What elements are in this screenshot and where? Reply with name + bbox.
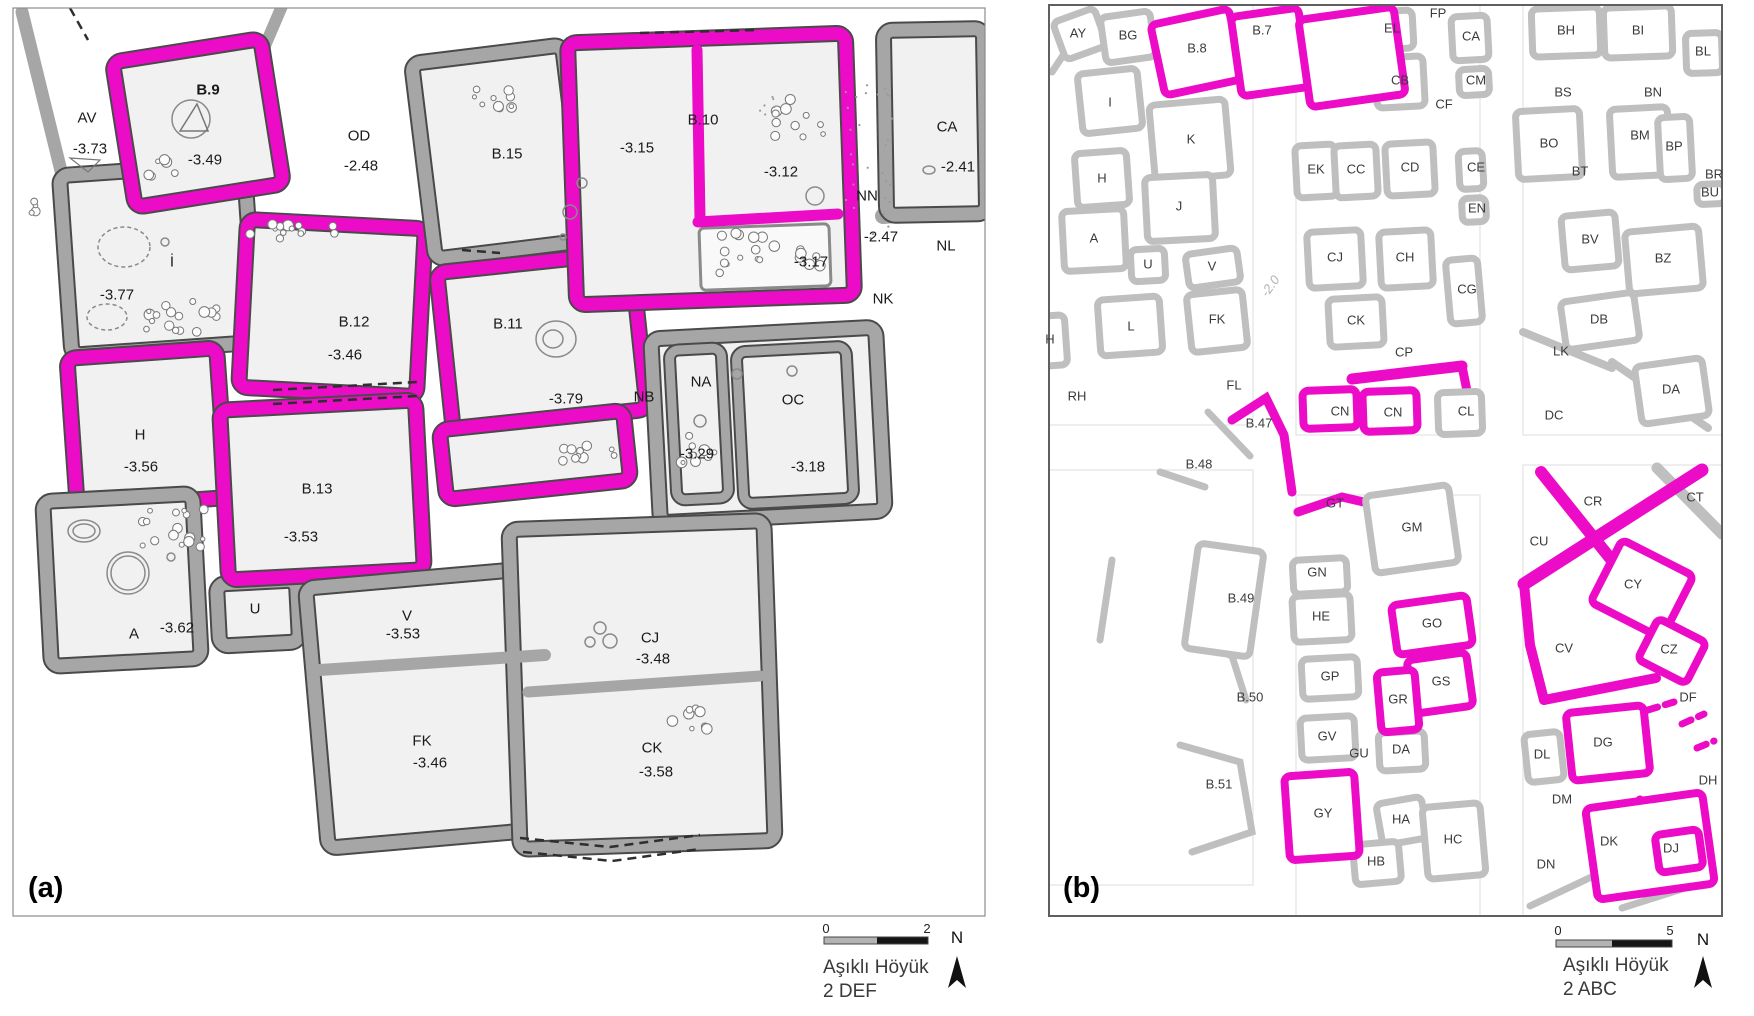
dot	[764, 113, 766, 115]
dashed-wall	[70, 8, 88, 40]
stone	[769, 241, 780, 252]
map-label-BV: BV	[1581, 232, 1598, 247]
scalebar-a-tick-start: 0	[822, 921, 829, 936]
map-label-FL: FL	[1226, 378, 1241, 393]
map-label-DG: DG	[1593, 735, 1613, 750]
map-label-CN: CN	[1384, 405, 1403, 420]
map-label-DF: DF	[1679, 690, 1696, 705]
stone	[818, 122, 824, 128]
map-label-A: A	[129, 626, 139, 643]
street-wall-highlighted	[1524, 584, 1544, 700]
map-label--3.53: -3.53	[386, 626, 420, 643]
map-label-CD: CD	[1401, 160, 1420, 175]
stone	[791, 121, 799, 129]
stone	[702, 724, 713, 735]
north-arrow-a	[948, 956, 966, 988]
map-label-CK: CK	[1347, 313, 1365, 328]
map-label-BT: BT	[1572, 164, 1589, 179]
stone	[720, 259, 728, 267]
dot	[884, 197, 886, 199]
stone	[781, 104, 792, 115]
map-label-CJ: CJ	[641, 630, 659, 647]
stone	[716, 269, 724, 277]
dot	[845, 199, 847, 201]
stone	[821, 132, 826, 137]
stone	[144, 170, 154, 180]
stone	[686, 432, 693, 439]
stone	[611, 453, 617, 459]
map-label-CY: CY	[1624, 577, 1642, 592]
stone	[149, 318, 154, 323]
dot	[865, 92, 867, 94]
map-label-OC: OC	[782, 392, 805, 409]
stone	[771, 131, 780, 140]
map-label--3.62: -3.62	[160, 620, 194, 637]
map-label-B.10: B.10	[688, 112, 719, 129]
map-label-GO: GO	[1422, 616, 1442, 631]
room-outline	[736, 346, 854, 504]
dot	[852, 163, 854, 165]
panel-b-geometry	[1024, 5, 1725, 916]
map-label-V: V	[1208, 259, 1217, 274]
stone	[609, 447, 614, 452]
map-label--2.47: -2.47	[864, 229, 898, 246]
stone	[803, 112, 809, 118]
stone	[147, 309, 151, 313]
dot	[845, 91, 847, 93]
dashed-wall-highlighted	[1697, 741, 1714, 748]
map-label-BH: BH	[1557, 23, 1575, 38]
map-label-BG: BG	[1119, 28, 1138, 43]
map-label-RH: RH	[1068, 389, 1087, 404]
stone	[31, 198, 38, 205]
panel-a-tag: (a)	[28, 872, 63, 905]
stone	[166, 308, 175, 317]
map-label--2.41: -2.41	[941, 159, 975, 176]
map-label-FK: FK	[412, 733, 431, 750]
scalebar-b-tick-end: 5	[1666, 923, 1673, 938]
site-plan-svg	[0, 0, 1754, 1016]
map-label-J: J	[1176, 199, 1183, 214]
map-label-BI: BI	[1632, 23, 1644, 38]
stone	[686, 706, 693, 713]
stone	[717, 231, 726, 240]
dot	[891, 118, 893, 120]
stone	[493, 101, 503, 111]
dot	[773, 106, 775, 108]
dot	[888, 201, 890, 203]
dot	[886, 93, 888, 95]
scalebar-b-caption-line1: Aşıklı Höyük	[1563, 955, 1669, 977]
stone	[751, 245, 760, 254]
map-label-CM: CM	[1466, 73, 1486, 88]
stone	[559, 456, 568, 465]
map-label--3.77: -3.77	[100, 287, 134, 304]
map-label-LK: LK	[1553, 344, 1569, 359]
dot	[772, 98, 774, 100]
map-label-CN: CN	[1331, 404, 1350, 419]
street-wall-highlighted	[1352, 366, 1462, 379]
street-wall	[1100, 560, 1112, 640]
map-label-BS: BS	[1554, 85, 1571, 100]
map-label-HB: HB	[1367, 854, 1385, 869]
dot	[850, 153, 852, 155]
stone	[159, 155, 169, 165]
map-label-CR: CR	[1584, 494, 1603, 509]
map-label-FP: FP	[1430, 6, 1447, 21]
street-wall	[1160, 472, 1205, 487]
wall-divider	[697, 50, 700, 218]
stone	[748, 232, 758, 242]
map-label-GP: GP	[1321, 669, 1340, 684]
dot	[852, 183, 854, 185]
map-label-EN: EN	[1468, 201, 1486, 216]
map-label-CK: CK	[642, 740, 663, 757]
dot	[853, 207, 855, 209]
stone	[199, 505, 208, 514]
stone	[772, 118, 780, 126]
stone	[720, 247, 729, 256]
dot	[877, 93, 879, 95]
map-label-NN: NN	[856, 188, 878, 205]
map-label-GV: GV	[1318, 729, 1337, 744]
map-label-GU: GU	[1349, 746, 1369, 761]
map-label-EK: EK	[1307, 162, 1324, 177]
map-label--3.79: -3.79	[549, 391, 583, 408]
map-label-K: K	[1187, 132, 1196, 147]
map-label-NA: NA	[691, 374, 712, 391]
stone	[800, 134, 806, 140]
map-label-DA: DA	[1662, 382, 1680, 397]
map-label--3.15: -3.15	[620, 140, 654, 157]
stone	[143, 518, 150, 525]
room-outline	[883, 29, 986, 216]
stone	[690, 726, 694, 730]
stone	[298, 231, 304, 237]
scalebar-a-caption-line1: Aşıklı Höyük	[823, 957, 929, 979]
map-label-B.48: B.48	[1186, 457, 1213, 472]
map-label-B.8: B.8	[1187, 41, 1207, 56]
room-outline	[239, 219, 426, 396]
stone	[199, 307, 210, 318]
stone	[268, 220, 277, 229]
stone	[165, 321, 174, 330]
map-label-BR: BR	[1705, 167, 1723, 182]
map-label-EL: EL	[1384, 21, 1400, 36]
map-label-HC: HC	[1444, 832, 1463, 847]
stone	[201, 537, 205, 541]
map-label-CA: CA	[937, 119, 958, 136]
stone	[695, 707, 705, 717]
north-label-a: N	[951, 928, 963, 948]
room-outline	[67, 348, 227, 508]
map-label-DB: DB	[1590, 312, 1608, 327]
stone-cluster	[29, 198, 40, 216]
map-label--3.73: -3.73	[73, 141, 107, 158]
stone	[153, 312, 160, 319]
stone	[785, 94, 795, 104]
dot	[847, 107, 849, 109]
stone	[295, 222, 302, 229]
north-label-b: N	[1697, 930, 1709, 950]
stone	[472, 95, 476, 99]
map-label-CC: CC	[1347, 162, 1366, 177]
street-wall	[1180, 745, 1252, 852]
stone	[480, 102, 485, 107]
dot	[858, 124, 860, 126]
map-label--3.46: -3.46	[413, 755, 447, 772]
north-arrow-b	[1694, 956, 1712, 988]
dot	[771, 96, 773, 98]
map-label-CG: CG	[1457, 282, 1477, 297]
dot	[867, 167, 869, 169]
room-highlighted	[1655, 829, 1704, 873]
map-label-DH: DH	[1699, 773, 1718, 788]
map-label-CV: CV	[1555, 641, 1573, 656]
map-label-NL: NL	[936, 238, 955, 255]
map-label-CJ: CJ	[1327, 250, 1343, 265]
map-label-B.7: B.7	[1252, 23, 1272, 38]
dot	[849, 129, 851, 131]
map-label--3.53: -3.53	[284, 529, 318, 546]
dot	[884, 88, 886, 90]
map-label-B.50: B.50	[1237, 690, 1264, 705]
stone	[731, 228, 741, 238]
map-label-CE: CE	[1467, 160, 1485, 175]
map-label-DK: DK	[1600, 834, 1618, 849]
map-label-U: U	[1143, 257, 1152, 272]
dot	[885, 180, 887, 182]
map-label-L: L	[1127, 319, 1134, 334]
stone	[757, 257, 763, 263]
map-label--3.58: -3.58	[639, 764, 673, 781]
map-label-BU: BU	[1701, 185, 1719, 200]
stone	[196, 543, 204, 551]
stone	[504, 86, 513, 95]
stone	[173, 509, 180, 516]
map-label-CA: CA	[1462, 29, 1480, 44]
map-label--3.56: -3.56	[124, 459, 158, 476]
stone	[329, 222, 337, 230]
panel-a-geometry	[22, 6, 987, 861]
dashed-wall-highlighted	[1682, 714, 1704, 724]
map-label-AY: AY	[1070, 26, 1086, 41]
dot	[763, 104, 765, 106]
map-label--3.12: -3.12	[764, 164, 798, 181]
dot	[888, 94, 890, 96]
stone	[148, 508, 153, 513]
room-outline	[43, 494, 201, 667]
map-label-BP: BP	[1665, 139, 1682, 154]
map-label-CF: CF	[1435, 97, 1452, 112]
map-label-OD: OD	[348, 128, 371, 145]
map-label-B.11: B.11	[493, 316, 523, 333]
map-label-BZ: BZ	[1655, 251, 1672, 266]
map-label-V: V	[402, 608, 412, 625]
map-label-B.47: B.47	[1246, 416, 1273, 431]
dashed-wall-highlighted	[1648, 702, 1674, 710]
scalebar-a-caption-line2: 2 DEF	[823, 981, 877, 1003]
stone	[140, 543, 145, 548]
stone	[175, 312, 183, 320]
map-label-FK: FK	[1209, 312, 1226, 327]
dot	[759, 110, 761, 112]
stone	[772, 110, 779, 117]
stone	[276, 235, 283, 242]
map-label-BM: BM	[1630, 128, 1650, 143]
map-label-BO: BO	[1540, 136, 1559, 151]
map-label-A: A	[1090, 231, 1099, 246]
dot	[889, 184, 891, 186]
map-label-GT: GT	[1326, 496, 1344, 511]
street-wall-highlighted	[1544, 678, 1656, 700]
map-label-B.15: B.15	[492, 146, 523, 163]
stone	[184, 537, 194, 547]
map-label--3.48: -3.48	[636, 651, 670, 668]
stone	[169, 530, 179, 540]
map-label-B.9: B.9	[196, 82, 219, 99]
stone	[182, 508, 187, 513]
stone	[491, 95, 496, 100]
map-label-H: H	[135, 427, 146, 444]
stone	[567, 445, 576, 454]
map-label-GM: GM	[1402, 520, 1423, 535]
map-label--3.17: -3.17	[794, 254, 828, 271]
map-label-GS: GS	[1432, 674, 1451, 689]
map-label-DC: DC	[1545, 408, 1564, 423]
stone	[171, 170, 178, 177]
stone	[572, 454, 580, 462]
scalebar-b-tick-start: 0	[1554, 923, 1561, 938]
stone	[151, 537, 159, 545]
map-label--3.29: -3.29	[680, 446, 714, 463]
stone	[331, 230, 339, 238]
dot	[887, 226, 889, 228]
map-label-H: H	[1097, 171, 1106, 186]
panel-b-tag: (b)	[1063, 872, 1100, 905]
stone	[190, 298, 196, 304]
excavation-block-outline	[1049, 470, 1253, 885]
map-label-CT: CT	[1686, 490, 1703, 505]
stone	[144, 326, 150, 332]
map-label--3.18: -3.18	[791, 459, 825, 476]
stone	[246, 230, 255, 239]
map-label-GR: GR	[1388, 692, 1408, 707]
map-label-CZ: CZ	[1660, 642, 1677, 657]
figure-canvas: AV-3.73B.9-3.49OD-2.48B.15-3.15B.10-3.12…	[0, 0, 1754, 1016]
dot	[881, 172, 883, 174]
map-label--2.48: -2.48	[344, 158, 378, 175]
map-label-H: H	[1045, 332, 1054, 347]
map-label-DM: DM	[1552, 792, 1572, 807]
dot	[887, 139, 889, 141]
map-label-DN: DN	[1537, 857, 1556, 872]
dot	[885, 144, 887, 146]
stone	[29, 210, 34, 215]
map-label-HE: HE	[1312, 609, 1330, 624]
stone	[738, 255, 743, 260]
map-label-NB: NB	[634, 389, 655, 406]
map-label-İ: İ	[170, 254, 174, 271]
map-label-CP: CP	[1395, 345, 1413, 360]
map-label-B.13: B.13	[302, 481, 333, 498]
map-label-AV: AV	[78, 110, 97, 127]
map-label-DL: DL	[1534, 747, 1551, 762]
map-label-U: U	[250, 601, 261, 618]
map-label-I: I	[1108, 95, 1112, 110]
map-label-B.49: B.49	[1228, 591, 1255, 606]
stone	[473, 86, 480, 93]
map-label--3.49: -3.49	[188, 152, 222, 169]
dot	[882, 213, 884, 215]
map-label-DA: DA	[1392, 742, 1410, 757]
map-label-CU: CU	[1530, 534, 1549, 549]
map-label-GN: GN	[1307, 565, 1327, 580]
map-label-BL: BL	[1695, 44, 1711, 59]
stone	[667, 716, 678, 727]
map-label-GY: GY	[1314, 806, 1333, 821]
map-label-BN: BN	[1644, 85, 1662, 100]
map-label-CL: CL	[1458, 404, 1475, 419]
map-label--3.46: -3.46	[328, 347, 362, 364]
scalebar-b-caption-line2: 2 ABC	[1563, 979, 1617, 1001]
map-label-B.51: B.51	[1206, 777, 1233, 792]
map-label-NK: NK	[873, 291, 894, 308]
stone	[192, 327, 201, 336]
map-label-B.12: B.12	[339, 314, 370, 331]
map-label-CB: CB	[1391, 73, 1409, 88]
stone	[289, 226, 294, 231]
scalebar-a-tick-end: 2	[923, 921, 930, 936]
dot	[855, 96, 857, 98]
map-label-HA: HA	[1392, 812, 1410, 827]
dot	[866, 84, 868, 86]
map-label-DJ: DJ	[1663, 841, 1679, 856]
map-label-CH: CH	[1396, 250, 1415, 265]
stone	[509, 104, 514, 109]
